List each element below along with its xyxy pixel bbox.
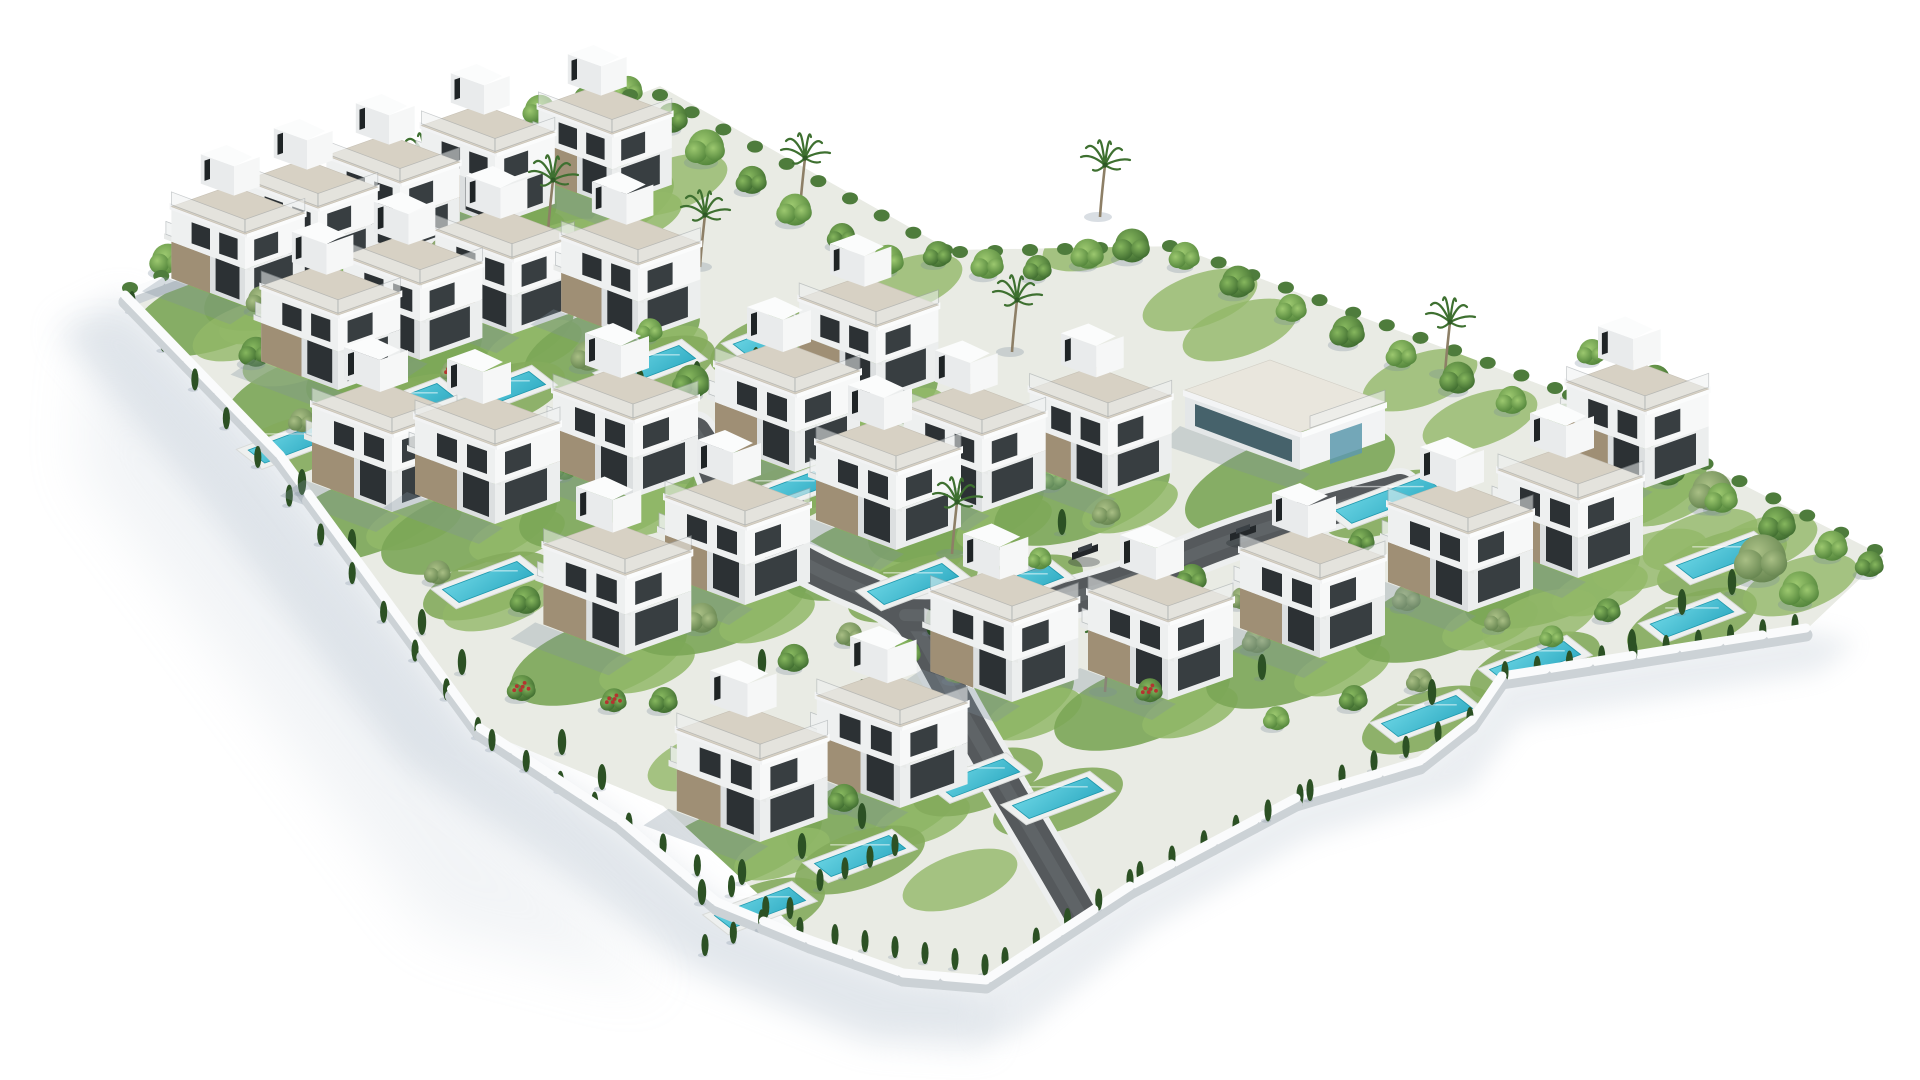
bush-body — [1312, 294, 1328, 306]
hedge-bush — [1731, 475, 1747, 487]
cypress-tree — [690, 854, 701, 877]
hedge-bush — [1480, 357, 1496, 369]
tree-canopy — [1594, 606, 1609, 621]
tree-canopy — [671, 113, 688, 130]
red-blossom — [613, 697, 617, 701]
cypress-body — [1370, 750, 1377, 772]
tree-canopy — [1779, 583, 1801, 605]
bush-body — [652, 89, 668, 101]
hedge-bush — [1799, 510, 1815, 522]
cypress-body — [786, 897, 793, 919]
cypress-body — [738, 859, 746, 885]
bush-body — [1412, 332, 1428, 344]
tree-canopy — [794, 204, 812, 222]
villa-development-aerial-render — [0, 0, 1920, 1080]
hedge-bush — [1211, 257, 1227, 269]
cypress-body — [1678, 589, 1686, 615]
wall-top — [903, 973, 945, 977]
palm-crown — [550, 177, 555, 182]
palm-frond — [1450, 316, 1475, 322]
tree-canopy — [987, 259, 1004, 276]
tree-canopy — [937, 250, 951, 264]
red-blossom — [1154, 689, 1158, 693]
tree-canopy — [776, 204, 796, 224]
red-blossom — [1149, 687, 1153, 691]
tree-canopy — [1777, 518, 1796, 537]
perimeter-wall-segment — [945, 977, 987, 988]
tree-canopy — [1169, 251, 1186, 268]
tree-canopy — [510, 595, 527, 612]
hedge-bush — [1022, 244, 1038, 256]
hedge-bush — [1312, 294, 1328, 306]
tree-canopy — [1106, 508, 1120, 522]
tree-canopy — [1814, 540, 1833, 559]
red-blossom — [523, 681, 527, 685]
hedge-bush — [747, 141, 763, 153]
red-blossom — [607, 697, 611, 701]
tree-canopy — [1734, 550, 1764, 580]
cypress-body — [858, 803, 866, 829]
tree-canopy — [1386, 349, 1403, 366]
render-canvas — [0, 0, 1920, 1080]
cypress-body — [866, 846, 873, 868]
tree-canopy — [1092, 507, 1108, 523]
perimeter-wall-segment — [1763, 628, 1806, 642]
hedge-bush — [715, 123, 731, 135]
cypress-body — [418, 609, 426, 635]
tree-canopy — [1263, 714, 1278, 729]
hedge-bush — [652, 89, 668, 101]
cypress-body — [254, 446, 261, 468]
tree-canopy — [1087, 249, 1104, 266]
cypress-body — [951, 948, 958, 970]
tree-canopy — [1401, 349, 1416, 364]
bush-body — [1513, 369, 1529, 381]
tree-canopy — [1037, 264, 1051, 278]
bush-body — [1211, 257, 1227, 269]
tree-canopy — [836, 630, 851, 645]
palm-crown — [1102, 162, 1107, 167]
cypress-body — [523, 750, 530, 772]
tree-canopy — [1577, 347, 1593, 363]
perimeter-wall-segment — [1719, 635, 1762, 649]
bush-body — [905, 227, 921, 239]
palm-crown — [954, 499, 959, 504]
tree-canopy — [1497, 616, 1510, 629]
tree-canopy — [288, 416, 303, 431]
bush-body — [747, 141, 763, 153]
cypress-body — [816, 869, 823, 891]
cypress-body — [1428, 679, 1436, 705]
bush-body — [874, 210, 890, 222]
tree-canopy — [1457, 372, 1475, 390]
cypress-body — [223, 407, 230, 429]
tree-canopy — [1869, 560, 1883, 574]
hedge-bush — [1379, 319, 1395, 331]
red-blossom — [1143, 687, 1147, 691]
tree-canopy — [705, 141, 725, 161]
bush-body — [1057, 243, 1073, 255]
wall-top — [945, 977, 987, 981]
tree-canopy — [828, 793, 845, 810]
palm-shadow — [1084, 212, 1112, 222]
bush-body — [1278, 282, 1294, 294]
tree-canopy — [663, 696, 677, 710]
cypress-body — [598, 764, 606, 790]
cypress-body — [1728, 569, 1736, 595]
red-blossom — [618, 699, 622, 703]
bush-body — [1379, 319, 1395, 331]
tree-canopy — [1607, 606, 1620, 619]
tree-canopy — [1131, 240, 1150, 259]
cypress-body — [1258, 654, 1266, 680]
palm-crown — [1014, 297, 1019, 302]
palm-crown — [702, 212, 707, 217]
tree-canopy — [923, 249, 939, 265]
tree-canopy — [1539, 632, 1553, 646]
red-blossom — [512, 688, 516, 692]
tree-canopy — [525, 595, 540, 610]
cypress-body — [730, 922, 737, 944]
red-blossom — [615, 694, 619, 698]
cypress-body — [317, 523, 324, 545]
hedge-bush — [1513, 369, 1529, 381]
cypress-body — [698, 879, 706, 905]
tree-canopy — [1496, 395, 1513, 412]
cypress-body — [380, 601, 387, 623]
cypress-body — [1306, 779, 1313, 801]
cypress-body — [981, 954, 988, 976]
tree-canopy — [1406, 676, 1421, 691]
palm-frond — [805, 152, 830, 158]
cypress-body — [798, 833, 806, 859]
tree-canopy — [843, 793, 858, 808]
tree-canopy — [970, 258, 989, 277]
tree-canopy — [1704, 492, 1723, 511]
cypress-body — [1058, 509, 1066, 535]
cypress-body — [694, 854, 701, 876]
cypress-tree — [724, 875, 735, 898]
palm-trunk — [1100, 165, 1105, 217]
cypress-body — [488, 729, 495, 751]
tree-canopy — [685, 141, 707, 163]
bush-body — [1765, 492, 1781, 504]
tree-canopy — [751, 175, 766, 190]
bush-body — [1547, 382, 1563, 394]
cypress-body — [458, 649, 466, 675]
red-blossom — [605, 700, 609, 704]
palm-shadow — [996, 347, 1024, 357]
palm-tree — [1081, 140, 1130, 222]
tree-canopy — [1339, 693, 1355, 709]
tree-canopy — [1551, 633, 1563, 645]
tree-canopy — [649, 326, 662, 339]
bush-body — [1022, 244, 1038, 256]
hedge-bush — [1547, 382, 1563, 394]
tree-canopy — [1484, 616, 1499, 631]
bush-body — [810, 175, 826, 187]
hedge-bush — [842, 192, 858, 204]
bush-body — [1799, 510, 1815, 522]
tree-canopy — [1219, 276, 1239, 296]
bush-body — [715, 123, 731, 135]
red-blossom — [519, 688, 523, 692]
tree-canopy — [1761, 550, 1787, 576]
cypress-body — [1264, 799, 1271, 821]
perimeter-wall-segment — [1632, 649, 1675, 663]
tree-canopy — [1347, 326, 1365, 344]
tree-canopy — [437, 568, 450, 581]
cypress-body — [349, 562, 356, 584]
tree-canopy — [1237, 276, 1255, 294]
perimeter-wall-segment — [1676, 642, 1719, 656]
red-blossom — [527, 687, 531, 691]
hedge-bush — [1765, 492, 1781, 504]
hedge-bush — [874, 210, 890, 222]
red-blossom — [521, 685, 525, 689]
cypress-body — [558, 729, 566, 755]
tree-canopy — [701, 613, 718, 630]
bush-body — [842, 192, 858, 204]
tree-canopy — [1027, 554, 1041, 568]
tree-canopy — [1721, 493, 1738, 510]
tree-canopy — [1112, 239, 1133, 260]
hedge-bush — [779, 158, 795, 170]
tree-canopy — [1439, 372, 1459, 392]
hedge-bush — [1278, 282, 1294, 294]
red-blossom — [515, 684, 519, 688]
red-blossom — [1151, 684, 1155, 688]
tree-canopy — [1329, 326, 1349, 346]
tree-canopy — [1511, 395, 1526, 410]
tree-canopy — [1070, 248, 1089, 267]
hedge-bush — [1057, 243, 1073, 255]
palm-frond — [1105, 159, 1130, 165]
palm-crown — [1447, 319, 1452, 324]
bush-body — [779, 158, 795, 170]
cypress-body — [921, 942, 928, 964]
bush-body — [952, 246, 968, 258]
palm-crown — [802, 155, 807, 160]
tree-canopy — [1276, 303, 1293, 320]
wall-face — [945, 984, 987, 988]
tree-canopy — [1831, 541, 1848, 558]
cypress-body — [831, 924, 838, 946]
bush-body — [1731, 475, 1747, 487]
tree-canopy — [736, 175, 753, 192]
hedge-bush — [1412, 332, 1428, 344]
tree-canopy — [1799, 583, 1819, 603]
cypress-body — [1402, 736, 1409, 758]
cypress-body — [891, 936, 898, 958]
bush-body — [1480, 357, 1496, 369]
cypress-body — [861, 930, 868, 952]
palm-shadow — [936, 549, 964, 559]
tree-canopy — [1855, 559, 1871, 575]
hedge-bush — [952, 246, 968, 258]
tree-canopy — [1276, 714, 1289, 727]
cypress-body — [701, 934, 708, 956]
red-blossom — [1141, 690, 1145, 694]
tree-canopy — [793, 653, 808, 668]
cypress-body — [191, 368, 198, 390]
cypress-body — [891, 834, 898, 856]
tree-canopy — [1353, 694, 1367, 708]
tree-canopy — [424, 568, 439, 583]
tree-canopy — [1023, 263, 1039, 279]
tree-canopy — [1039, 555, 1051, 567]
hedge-bush — [905, 227, 921, 239]
tree-canopy — [1291, 303, 1306, 318]
tree-canopy — [649, 695, 665, 711]
tree-canopy — [1184, 251, 1199, 266]
perimeter-wall-segment — [1545, 662, 1588, 676]
cypress-body — [841, 857, 848, 879]
perimeter-wall-segment — [1589, 655, 1632, 669]
cypress-body — [728, 875, 735, 897]
tree-canopy — [778, 653, 795, 670]
hedge-bush — [810, 175, 826, 187]
